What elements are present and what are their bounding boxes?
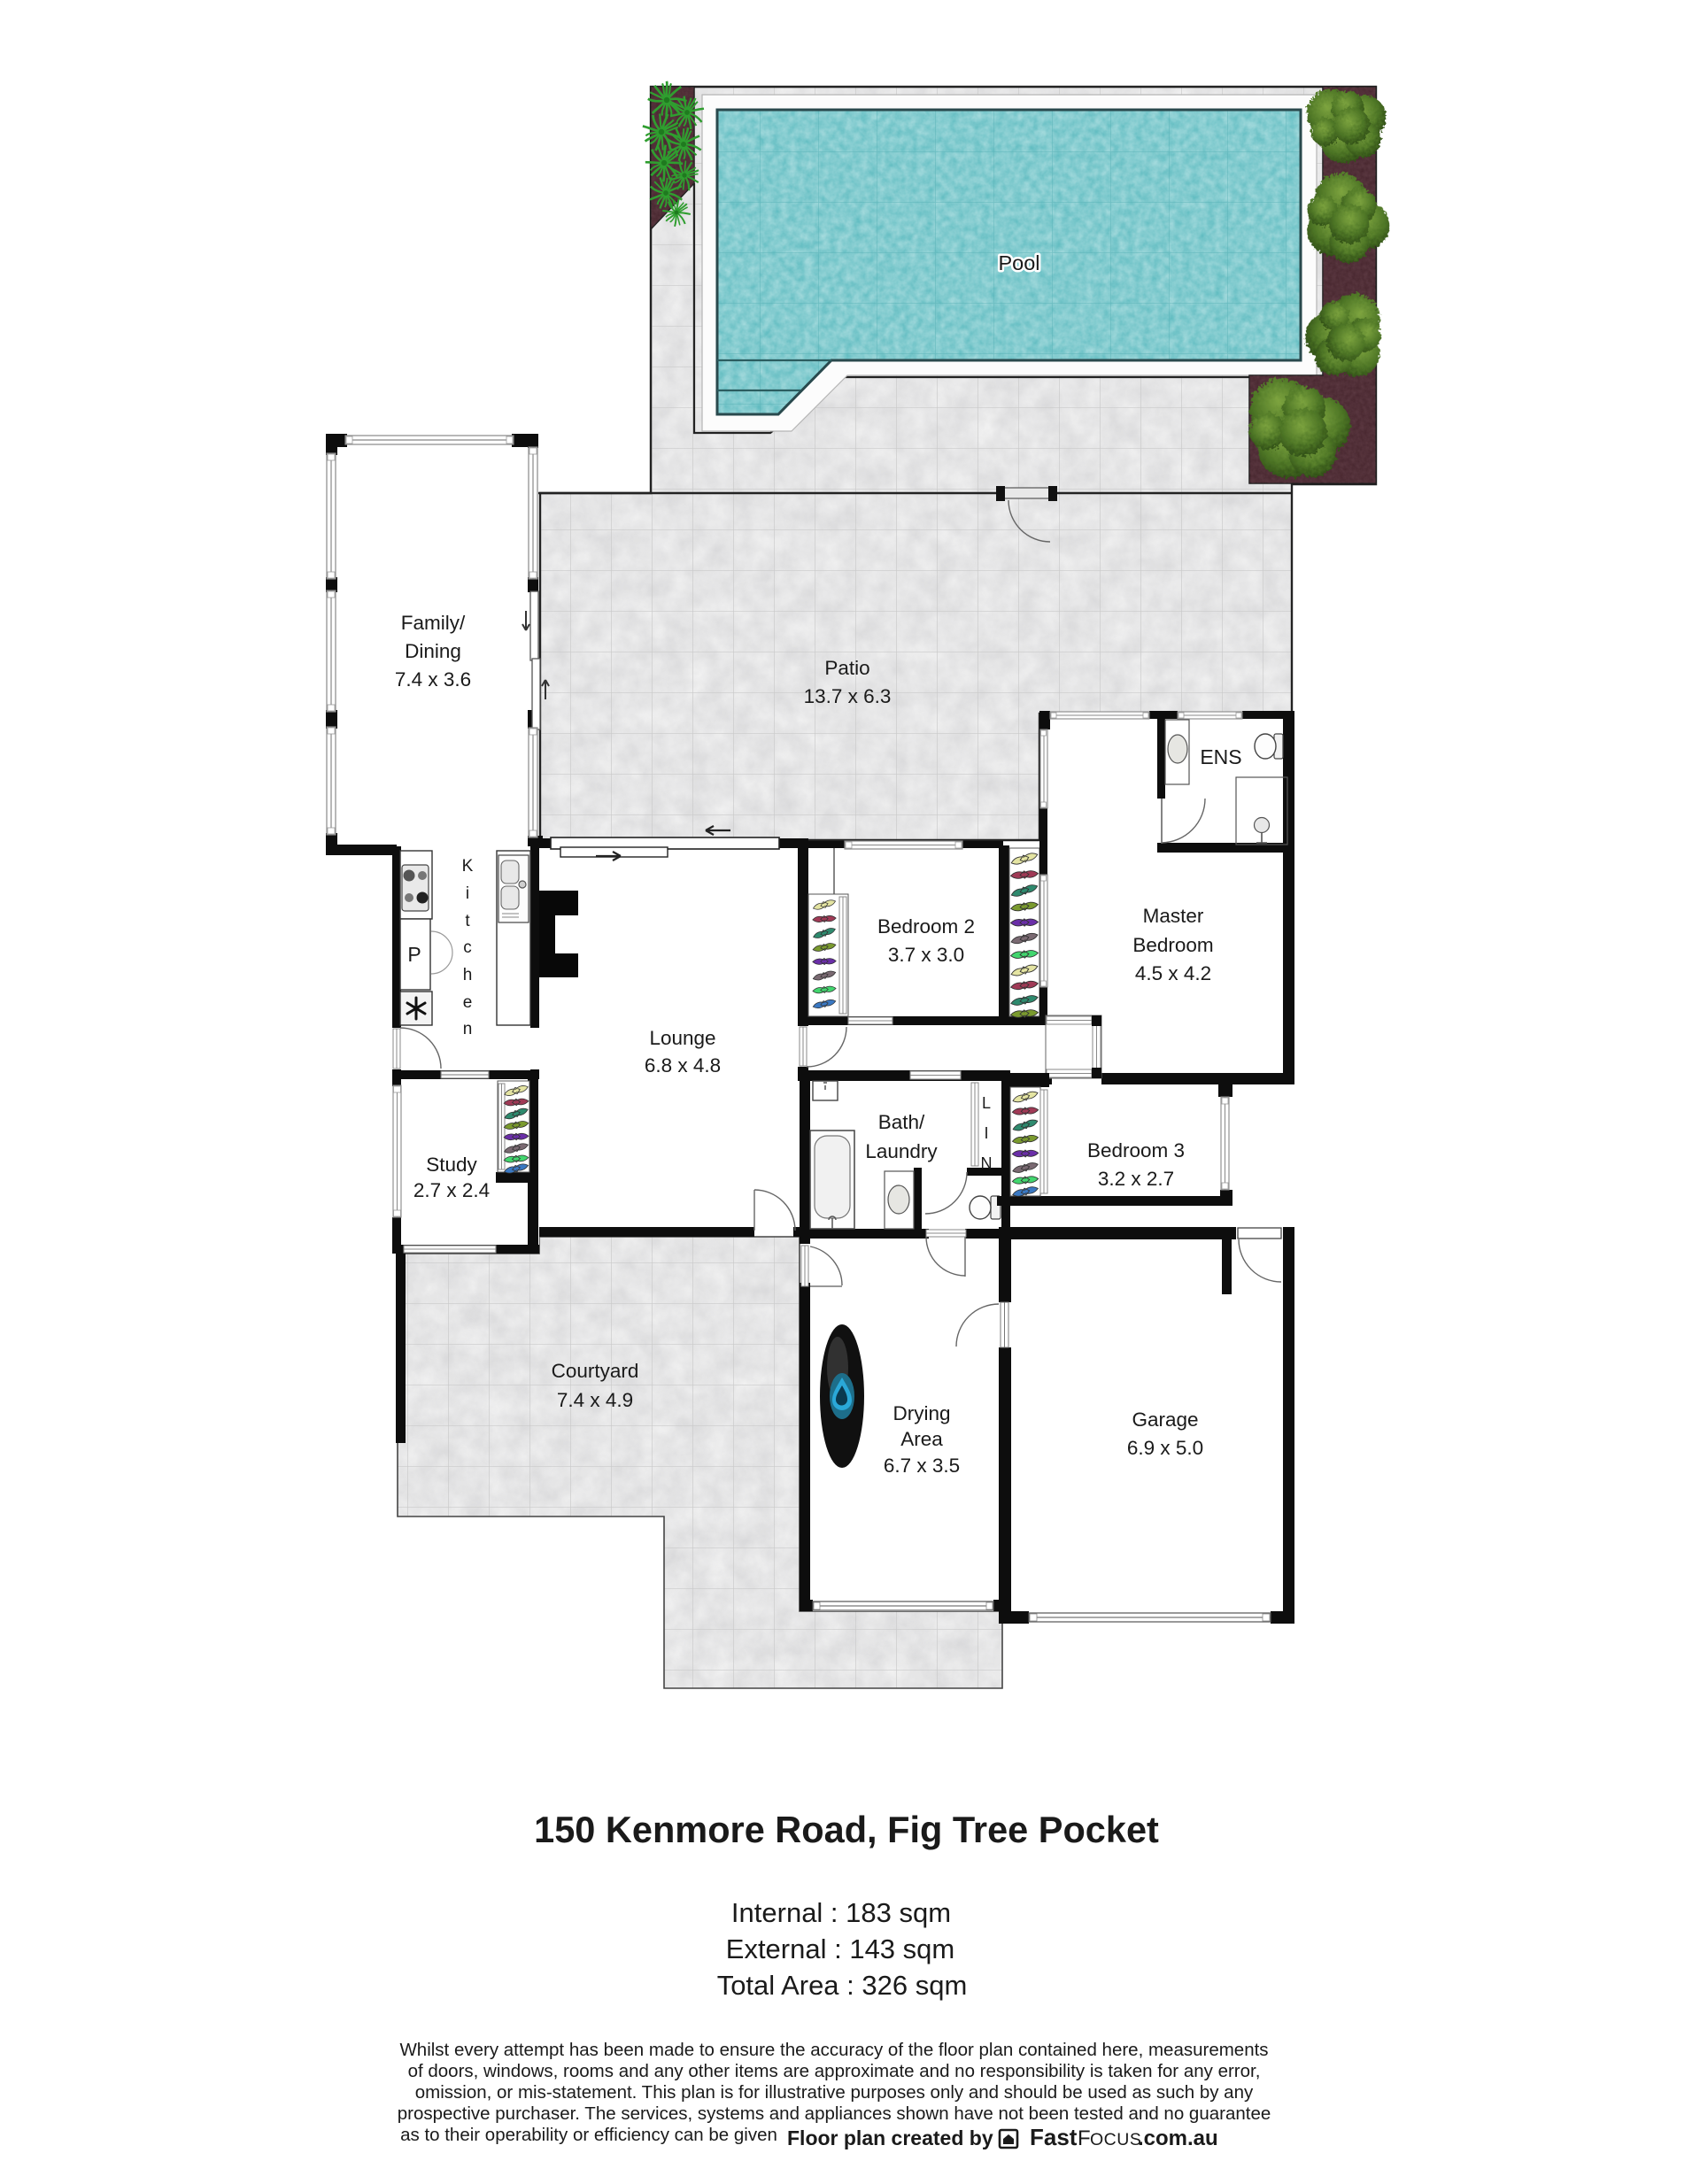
svg-text:Garage: Garage: [1132, 1408, 1198, 1431]
svg-text:e: e: [463, 993, 473, 1012]
svg-text:i: i: [466, 884, 469, 903]
svg-text:of doors, windows, rooms and a: of doors, windows, rooms and any other i…: [408, 2061, 1261, 2081]
svg-text:6.7 x 3.5: 6.7 x 3.5: [884, 1455, 960, 1477]
svg-text:Family/: Family/: [401, 612, 466, 634]
svg-text:Study: Study: [426, 1154, 477, 1176]
svg-text:Internal : 183 sqm: Internal : 183 sqm: [731, 1897, 951, 1928]
svg-text:Fast: Fast: [1030, 2124, 1078, 2150]
svg-text:prospective purchaser. The ser: prospective purchaser. The services, sys…: [398, 2103, 1271, 2124]
svg-text:as to their operability or eff: as to their operability or efficiency ca…: [400, 2125, 777, 2145]
svg-text:Total Area : 326 sqm: Total Area : 326 sqm: [717, 1970, 968, 2001]
svg-text:omission, or mis-statement. Th: omission, or mis-statement. This plan is…: [415, 2082, 1254, 2103]
svg-text:Bath/: Bath/: [878, 1111, 925, 1133]
svg-text:.com.au: .com.au: [1138, 2126, 1218, 2150]
svg-text:2.7 x 2.4: 2.7 x 2.4: [413, 1179, 490, 1201]
svg-text:3.2 x 2.7: 3.2 x 2.7: [1098, 1168, 1174, 1190]
svg-text:7.4 x 4.9: 7.4 x 4.9: [557, 1389, 633, 1411]
svg-text:Bedroom 3: Bedroom 3: [1087, 1139, 1185, 1161]
svg-text:OCUS: OCUS: [1090, 2130, 1141, 2149]
svg-text:h: h: [463, 966, 473, 984]
svg-text:4.5 x 4.2: 4.5 x 4.2: [1135, 962, 1211, 984]
svg-text:Laundry: Laundry: [865, 1140, 938, 1162]
svg-text:6.8 x 4.8: 6.8 x 4.8: [645, 1054, 721, 1077]
svg-text:13.7 x 6.3: 13.7 x 6.3: [804, 685, 892, 707]
svg-text:n: n: [463, 1020, 473, 1038]
svg-text:Patio: Patio: [824, 657, 869, 679]
svg-text:Pool: Pool: [998, 251, 1039, 274]
svg-text:K: K: [462, 857, 474, 876]
svg-text:3.7 x 3.0: 3.7 x 3.0: [888, 944, 964, 966]
svg-text:L: L: [982, 1094, 991, 1112]
svg-text:Bedroom 2: Bedroom 2: [877, 915, 975, 938]
svg-text:6.9 x 5.0: 6.9 x 5.0: [1127, 1437, 1203, 1459]
svg-text:7.4 x 3.6: 7.4 x 3.6: [395, 668, 471, 691]
svg-text:c: c: [463, 938, 472, 957]
svg-text:F: F: [1078, 2126, 1091, 2150]
svg-text:Master: Master: [1143, 905, 1204, 927]
svg-text:150 Kenmore Road, Fig Tree Poc: 150 Kenmore Road, Fig Tree Pocket: [534, 1809, 1159, 1850]
svg-text:Dining: Dining: [405, 640, 461, 662]
svg-text:Whilst every attempt has been: Whilst every attempt has been made to en…: [399, 2040, 1268, 2060]
svg-text:External : 143 sqm: External : 143 sqm: [726, 1933, 954, 1964]
svg-text:Area: Area: [900, 1428, 943, 1450]
svg-text:t: t: [465, 912, 470, 930]
svg-text:Courtyard: Courtyard: [552, 1360, 639, 1382]
svg-text:ENS: ENS: [1200, 745, 1241, 768]
svg-text:Bedroom: Bedroom: [1132, 934, 1213, 956]
svg-text:Drying: Drying: [892, 1402, 950, 1424]
svg-text:N: N: [981, 1154, 993, 1172]
svg-text:Floor plan created by: Floor plan created by: [787, 2126, 993, 2149]
svg-text:Lounge: Lounge: [649, 1027, 715, 1049]
svg-text:P: P: [407, 943, 421, 966]
svg-text:I: I: [984, 1124, 988, 1142]
